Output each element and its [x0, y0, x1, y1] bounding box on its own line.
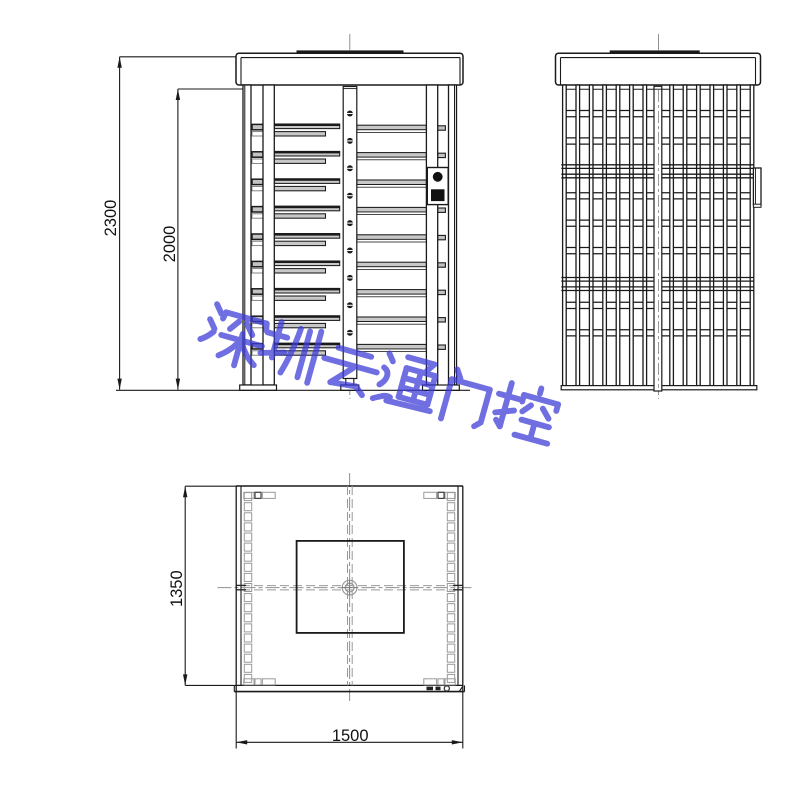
svg-text:1350: 1350	[168, 570, 186, 607]
svg-text:2300: 2300	[102, 200, 120, 237]
svg-text:1500: 1500	[332, 727, 369, 745]
svg-text:2000: 2000	[161, 226, 179, 263]
